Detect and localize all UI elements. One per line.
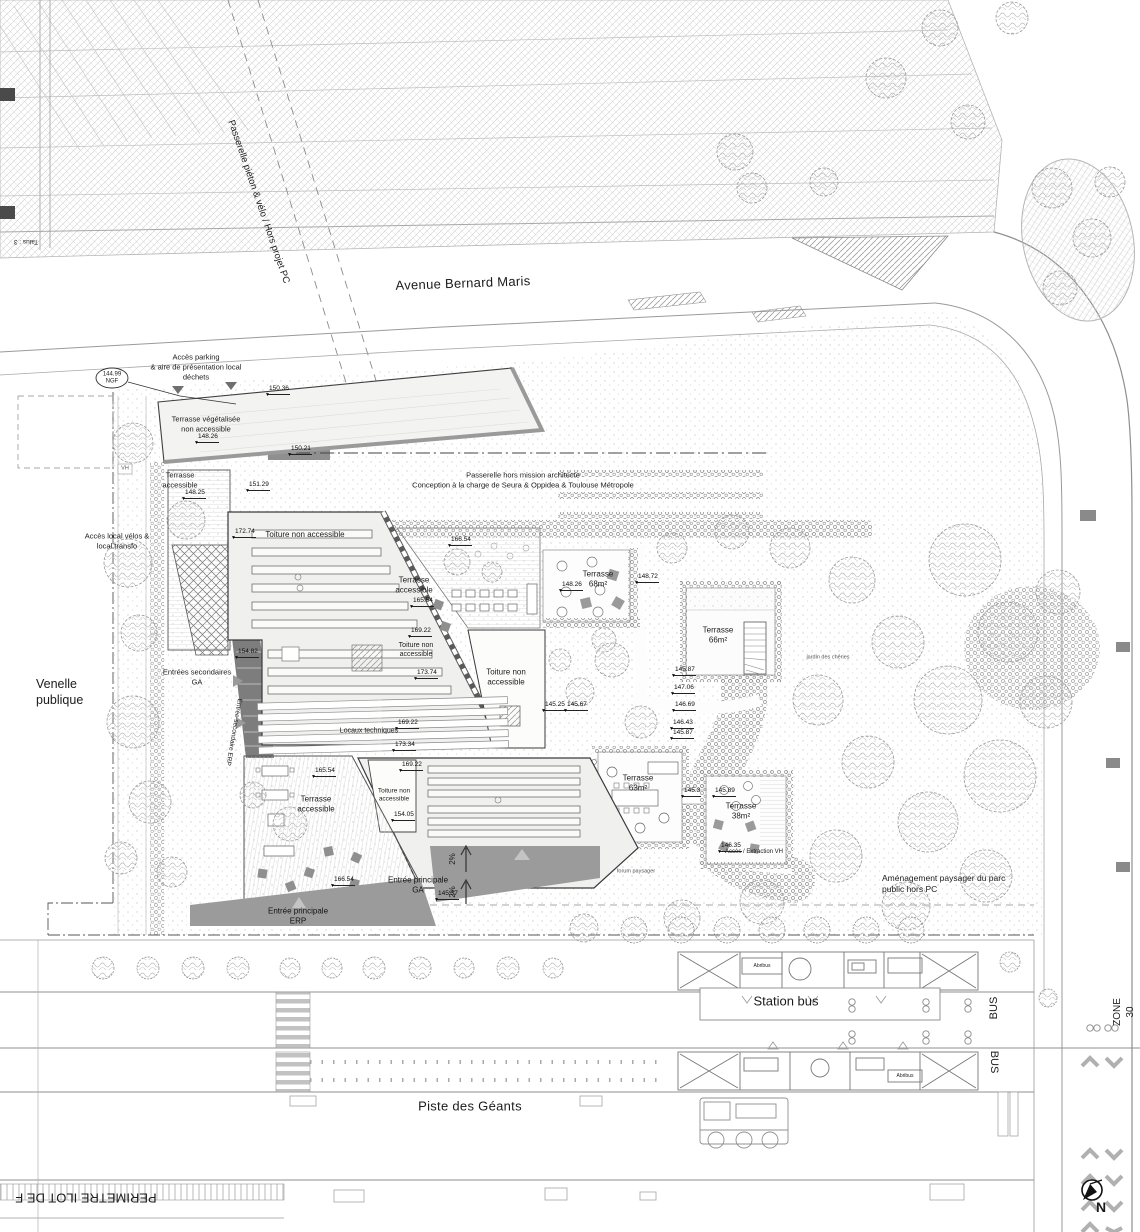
spot-level: 154.05 (393, 812, 415, 821)
spot-level: 148.25 (184, 490, 206, 499)
terrasse-accessible-label-1: Terrasse accessible (162, 470, 197, 490)
entrees-secondaires-label: Entrées secondaires GA (163, 667, 231, 687)
spot-level: 146.43 (672, 720, 694, 729)
spot-level: 148.26 (561, 582, 583, 591)
toiture-label-4: Toiture non accessible (378, 788, 410, 805)
spot-level: 150.21 (290, 446, 312, 455)
spot-level: 151.29 (248, 482, 270, 491)
bus-marking-1: BUS (987, 997, 1001, 1020)
bus-marking-2: BUS (987, 1051, 1001, 1074)
terrasse-38-label: Terrasse 38m² (726, 802, 757, 823)
forum-paysager-label: forum paysager (617, 868, 655, 875)
spot-level: 169.22 (410, 628, 432, 637)
spot-level: 148.72 (637, 574, 659, 583)
spot-level: 154.82 (237, 649, 259, 658)
spot-level: 169.22 (401, 762, 423, 771)
jardin-chenes-label: jardin des chênes (806, 654, 849, 661)
abribus-label-2: Abribus (897, 1073, 914, 1080)
terrasse-63-label: Terrasse 63m² (623, 774, 654, 795)
spot-level: 165.54 (412, 598, 434, 607)
acces-parking-label: Accès parking & aire de présentation loc… (151, 352, 242, 381)
toiture-label-3: Toiture non accessible (486, 668, 526, 689)
spot-level: 145.3 (683, 788, 701, 797)
spot-level: 145.87 (674, 667, 696, 676)
north-label: N (1096, 1198, 1106, 1216)
spot-level: 173.74 (416, 670, 438, 679)
terrasse-66-label: Terrasse 66m² (703, 626, 734, 647)
ngf-label: 144.99 NGF (103, 371, 121, 384)
terrasse-accessible-label-3: Terrasse accessible (297, 795, 334, 816)
spot-level: 146.35 (720, 843, 742, 852)
entree-principale-erp-label: Entrée principale ERP (268, 907, 328, 928)
spot-level: 166.54 (333, 877, 355, 886)
bus-and-piste (0, 940, 1140, 1232)
spot-level: 172.74 (234, 529, 256, 538)
spot-level: 173.34 (394, 742, 416, 751)
spot-level: 169.22 (397, 720, 419, 729)
locaux-techniques-label: Locaux techniques (340, 726, 398, 735)
slope-label-1: 2% (448, 853, 458, 865)
zone30-marking: ZONE 30 (1111, 998, 1137, 1026)
vh-label: VH (121, 465, 129, 472)
terrasse-vegetalisee-label: Terrasse végétalisée non accessible (172, 414, 241, 434)
site-plan-drawing (0, 0, 1140, 1232)
spot-level: 145.67 (566, 702, 588, 711)
toiture-label-1: Toiture non accessible (265, 530, 344, 540)
spot-level: 148.26 (197, 434, 219, 443)
street-label-piste: Piste des Géants (418, 1099, 522, 1116)
talus-label: Talus : 3 (14, 237, 38, 245)
spot-level: 146.69 (674, 702, 696, 711)
spot-level: 165.54 (314, 768, 336, 777)
spot-level: 150.36 (268, 386, 290, 395)
vehicle-sketch (700, 1098, 788, 1148)
passerelle-mission-note: Passerelle hors mission architecte Conce… (412, 470, 634, 490)
amenagement-note: Aménagement paysager du parc public hors… (882, 873, 1005, 895)
toiture-label-2: Toiture non accessible (399, 641, 434, 659)
acces-velos-label: Accès local vélos & local transfo (85, 531, 150, 551)
terrasse-accessible-label-2: Terrasse accessible (395, 576, 432, 597)
perimetre-label: PERIMETRE ILOT DE F (15, 1189, 156, 1206)
spot-level: 147.06 (673, 685, 695, 694)
spot-level: 145.87 (672, 730, 694, 739)
terrasse-68-label: Terrasse 68m² (583, 570, 614, 591)
site-plan: Avenue Bernard Maris Piste des Géants Ve… (0, 0, 1140, 1232)
street-label-venelle: Venelle publique (36, 676, 83, 709)
spot-level: 166.54 (450, 537, 472, 546)
spot-level: 145.89 (714, 788, 736, 797)
spot-level: 145.37 (437, 891, 459, 900)
abribus-label-1: Abribus (754, 963, 771, 970)
station-bus-label: Station bus (753, 994, 818, 1011)
